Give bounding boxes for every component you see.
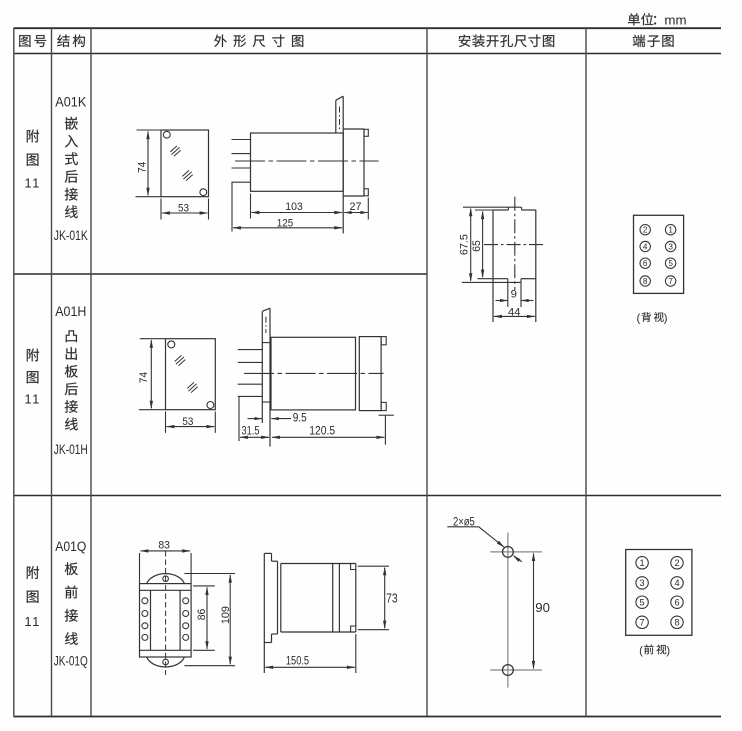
svg-text:8: 8 <box>643 277 648 286</box>
svg-text:120.5: 120.5 <box>309 423 335 437</box>
svg-text:A01K: A01K <box>55 94 86 109</box>
svg-text:7: 7 <box>640 618 645 628</box>
svg-text:2: 2 <box>643 226 648 235</box>
svg-text:A01Q: A01Q <box>55 539 86 554</box>
svg-text:90: 90 <box>535 600 550 615</box>
svg-text:150.5: 150.5 <box>286 653 310 667</box>
svg-text:JK-01K: JK-01K <box>54 228 88 243</box>
svg-text:44: 44 <box>508 306 521 318</box>
svg-text:109: 109 <box>220 606 232 624</box>
svg-text:74: 74 <box>138 372 150 383</box>
svg-text:9.5: 9.5 <box>293 411 307 425</box>
svg-text:2: 2 <box>674 558 679 568</box>
svg-text:53: 53 <box>178 203 189 215</box>
svg-text:125: 125 <box>277 217 294 229</box>
svg-text:(: ( <box>639 645 643 657</box>
svg-text:mm: mm <box>664 12 686 27</box>
svg-text:103: 103 <box>285 201 303 213</box>
svg-text:11: 11 <box>24 392 41 407</box>
svg-text:4: 4 <box>674 578 679 588</box>
svg-text:5: 5 <box>640 598 645 608</box>
svg-text:6: 6 <box>643 259 648 268</box>
svg-text:31.5: 31.5 <box>242 423 260 437</box>
svg-text:1: 1 <box>640 558 645 568</box>
svg-text:11: 11 <box>24 614 41 629</box>
svg-text:JK-01Q: JK-01Q <box>54 653 88 668</box>
svg-text:67.5: 67.5 <box>459 234 471 255</box>
svg-text:27: 27 <box>350 201 362 213</box>
svg-text:3: 3 <box>640 578 645 588</box>
svg-text:53: 53 <box>182 416 193 428</box>
svg-text:4: 4 <box>643 242 648 251</box>
svg-text:83: 83 <box>158 539 170 551</box>
svg-text:11: 11 <box>24 176 41 191</box>
svg-text:73: 73 <box>386 590 398 605</box>
svg-text:): ) <box>666 645 670 657</box>
svg-text:2×ø5: 2×ø5 <box>453 514 475 528</box>
svg-text:A01H: A01H <box>55 304 86 319</box>
svg-text:74: 74 <box>137 162 149 173</box>
svg-text:): ) <box>664 313 668 325</box>
svg-text:86: 86 <box>196 609 208 621</box>
svg-text:6: 6 <box>674 598 679 608</box>
svg-text:7: 7 <box>668 277 673 286</box>
svg-text:1: 1 <box>668 226 673 235</box>
svg-text:(: ( <box>637 313 641 325</box>
svg-text:JK-01H: JK-01H <box>54 442 88 457</box>
svg-text:3: 3 <box>668 242 673 251</box>
svg-text:5: 5 <box>668 259 673 268</box>
svg-text:65: 65 <box>471 240 483 252</box>
svg-text:9: 9 <box>511 289 517 301</box>
svg-text:8: 8 <box>674 618 679 628</box>
